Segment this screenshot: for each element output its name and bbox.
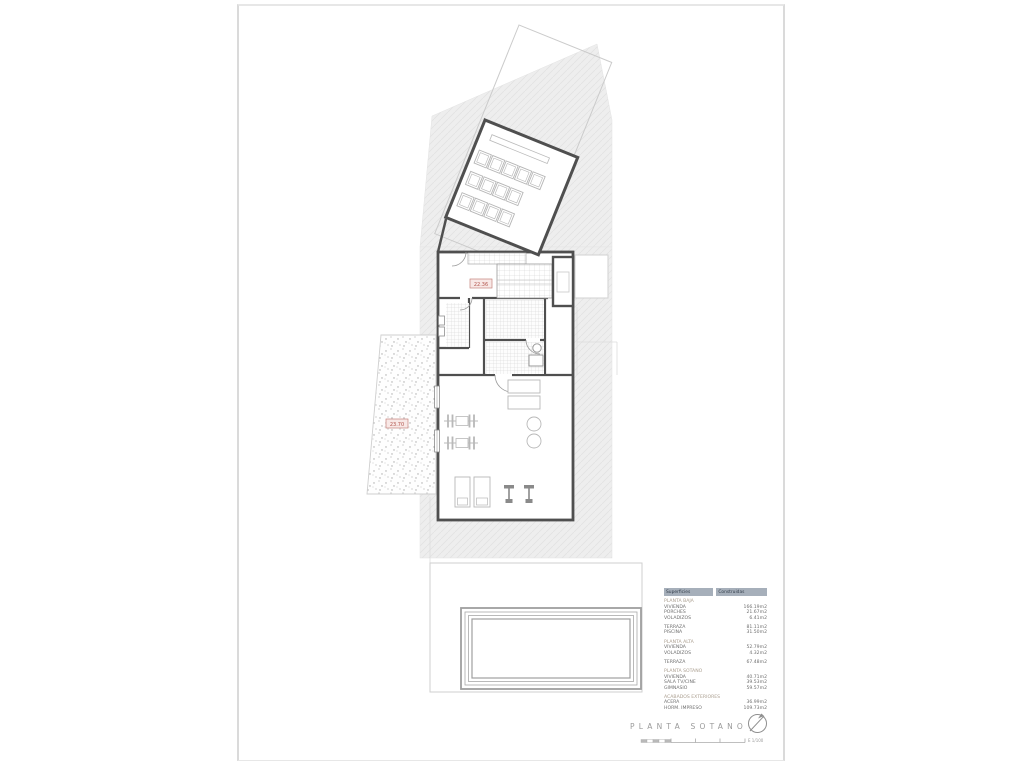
toilet-fixture	[533, 344, 541, 352]
row-value: 6.41m2	[749, 616, 767, 622]
areas-summary-table: Superficies Construidas PLANTA BAJA VIVI…	[664, 588, 767, 712]
table-row: GIMNASIO59.57m2	[664, 686, 767, 692]
upper-terrace	[575, 255, 608, 298]
table-row: VOLADIZOS6.41m2	[664, 616, 767, 622]
table-row: VOLADIZOS4.32m2	[664, 651, 767, 657]
exercise-mat	[508, 380, 540, 393]
level-label-stairs: 22.36	[470, 279, 492, 288]
row-value: 67.48m2	[746, 660, 767, 666]
exercise-ball	[527, 434, 541, 448]
row-label: VOLADIZOS	[664, 651, 749, 657]
elevator	[553, 257, 573, 306]
header-construidas: Construidas	[716, 588, 767, 596]
row-value: 4.32m2	[749, 651, 767, 657]
table-row: TERRAZA67.48m2	[664, 660, 767, 666]
row-label: TERRAZA	[664, 660, 746, 666]
scale-label: E 1/100	[748, 738, 764, 743]
patio	[367, 335, 436, 494]
patio-level-text: 23.70	[390, 422, 404, 428]
shower-fixture	[529, 355, 543, 366]
exercise-ball	[527, 417, 541, 431]
pool	[461, 608, 641, 689]
row-label: HORM. IMPRESO	[664, 706, 744, 712]
table-row: HORM. IMPRESO109.73m2	[664, 706, 767, 712]
row-label: VOLADIZOS	[664, 616, 749, 622]
stair-level-text: 22.36	[474, 282, 488, 288]
terrace-and-pool	[430, 563, 642, 692]
row-label: GIMNASIO	[664, 686, 746, 692]
exercise-mat	[508, 396, 540, 409]
row-value: 31.50m2	[746, 630, 767, 636]
sink-fixture	[439, 316, 445, 325]
floor-plan-drawing: 22.36 23.70 E 1/100	[0, 0, 1024, 768]
row-label: PISCINA	[664, 630, 746, 636]
level-label-patio: 23.70	[386, 419, 408, 428]
sink-fixture	[439, 327, 445, 336]
page-title: PLANTA SOTANO	[630, 722, 760, 731]
plan-sheet-stage: 22.36 23.70 E 1/100 Superficies Construi…	[0, 0, 1024, 768]
header-superficies: Superficies	[664, 588, 713, 596]
bathroom-3-floor	[446, 303, 469, 347]
table-row: PISCINA31.50m2	[664, 630, 767, 636]
table-header: Superficies Construidas	[664, 588, 767, 596]
row-value: 109.73m2	[744, 706, 767, 712]
row-value: 59.57m2	[746, 686, 767, 692]
scale-bar: E 1/100	[641, 738, 764, 743]
bathroom-1-floor	[486, 300, 544, 338]
